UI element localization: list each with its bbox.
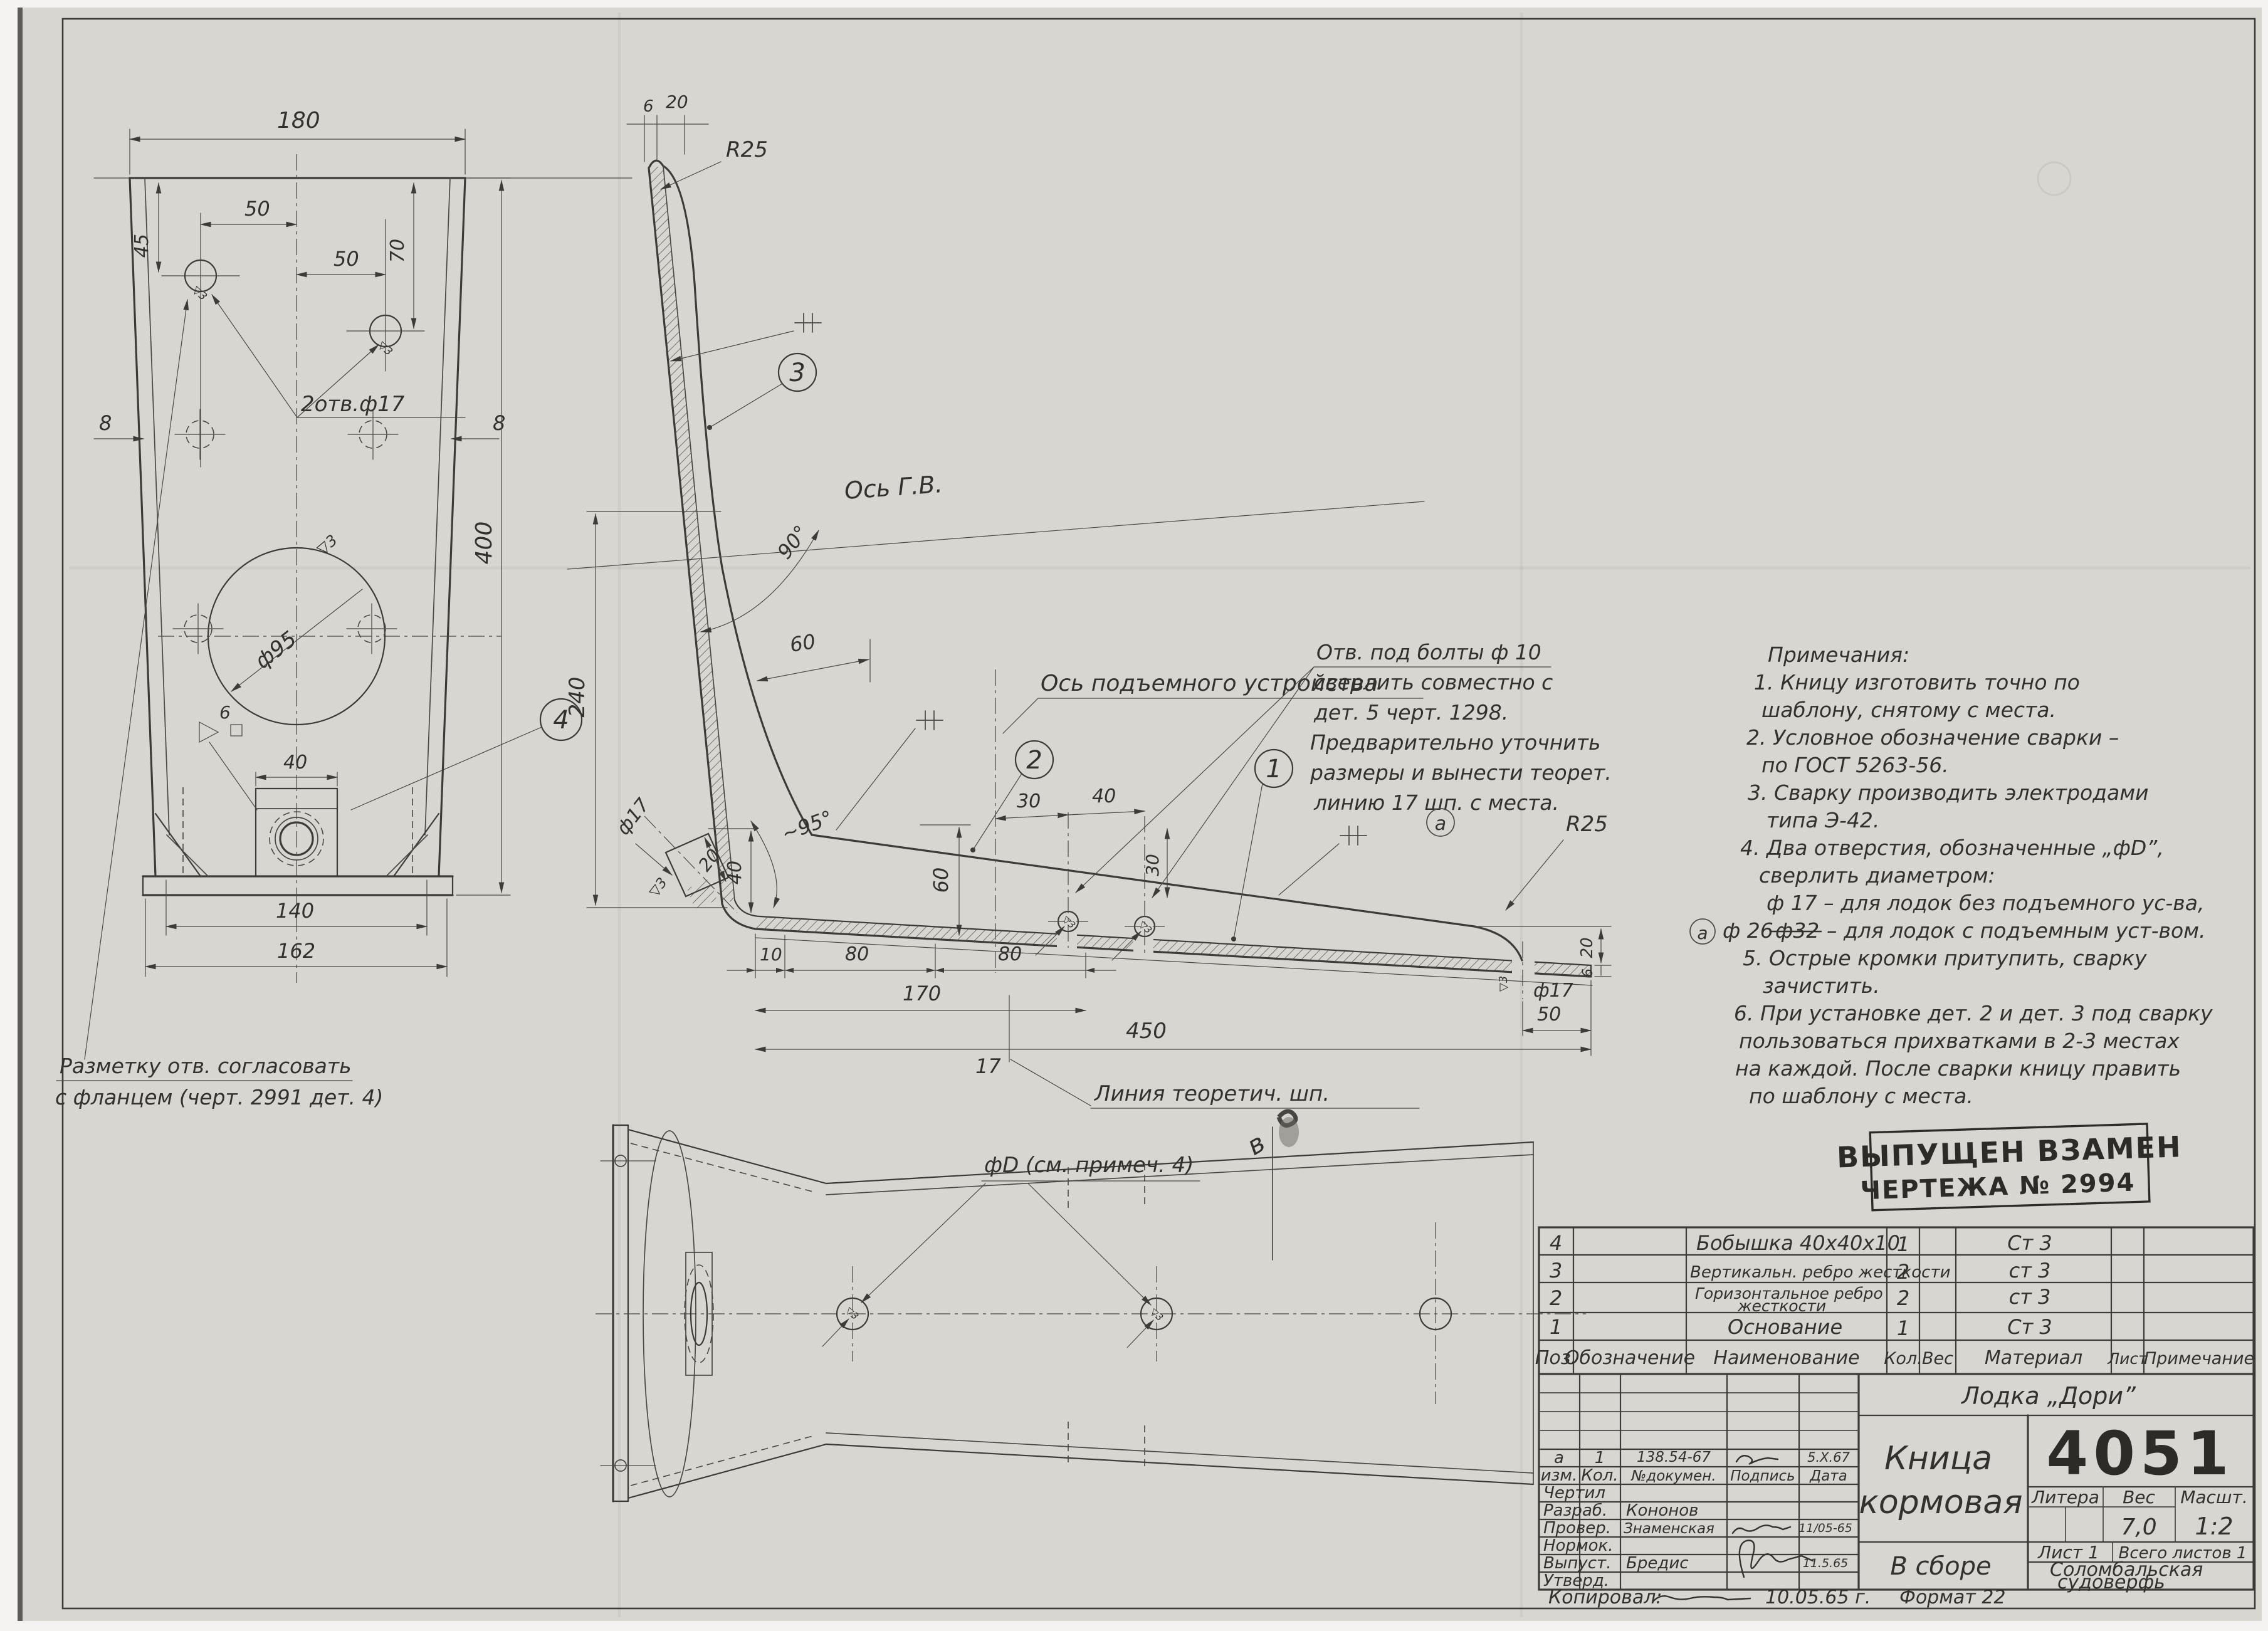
note-line-added: ф 26 <box>1723 918 1773 943</box>
row-razrab: Разраб. <box>1543 1501 1607 1520</box>
dim-40c: 40 <box>724 861 746 884</box>
dim-162: 162 <box>277 939 315 963</box>
dim-50a: 50 <box>244 197 270 221</box>
row-chertil: Чертил <box>1543 1484 1605 1503</box>
callout-3: 3 <box>789 359 805 387</box>
dim-60h: 60 <box>788 629 817 657</box>
project-name: Лодка „Дори” <box>1960 1382 2136 1410</box>
col-date: Дата <box>1809 1468 1847 1484</box>
part-mat: Ст 3 <box>2007 1231 2052 1255</box>
doc-title-2: кормовая <box>1859 1484 2022 1521</box>
part-name: жесткости <box>1737 1297 1826 1315</box>
bolt-note-2: сверлить совместно с <box>1314 670 1553 695</box>
row-normok: Нормок. <box>1543 1536 1613 1555</box>
col-izm: изм. <box>1541 1466 1578 1485</box>
prover-name: Знаменская <box>1624 1521 1714 1537</box>
part-qty: 1 <box>1897 1316 1909 1340</box>
note-line: шаблону, снятому с места. <box>1761 698 2056 722</box>
note-line: по шаблону с места. <box>1749 1084 1973 1108</box>
note-line: зачистить. <box>1763 973 1880 998</box>
dim-180: 180 <box>277 108 320 134</box>
front-note-2: с фланцем (черт. 2991 дет. 4) <box>55 1085 383 1109</box>
row-prover: Провер. <box>1543 1519 1611 1538</box>
row-vypust: Выпуст. <box>1543 1554 1611 1573</box>
dim-20r: 20 <box>1578 937 1597 958</box>
note-line: на каждой. После сварки кницу править <box>1735 1056 2181 1081</box>
dia17-right: ф17 <box>1533 980 1573 1002</box>
dim-140: 140 <box>276 899 314 923</box>
finish-mark: ▽3 <box>1497 976 1510 992</box>
masht-label: Масшт. <box>2180 1487 2248 1508</box>
plan-hole-label: фD (см. примеч. 4) <box>984 1153 1194 1178</box>
part-mat: Ст 3 <box>2007 1315 2052 1339</box>
part-name: Основание <box>1728 1315 1842 1339</box>
col-sign: Подпись <box>1730 1468 1795 1484</box>
dim-6r: 6 <box>1580 968 1596 977</box>
note-line: по ГОСТ 5263-56. <box>1761 753 1949 777</box>
r25-top: R25 <box>726 137 768 162</box>
doc-number: 4051 <box>2046 1419 2234 1489</box>
rev-izm: а <box>1554 1449 1564 1467</box>
dim-80a: 80 <box>845 943 869 965</box>
dim-20-top: 20 <box>666 92 688 112</box>
part-pos: 3 <box>1550 1259 1562 1282</box>
rev-doc: 138.54-67 <box>1637 1449 1711 1466</box>
part-pos: 4 <box>1550 1231 1562 1255</box>
col-desig: Обозначение <box>1565 1347 1695 1369</box>
bolt-note-6: линию 17 шп. с места. <box>1313 790 1559 815</box>
col-note: Примечание <box>2144 1349 2254 1368</box>
part-qty: 2 <box>1897 1286 1909 1310</box>
format-label: Формат 22 <box>1899 1586 2005 1608</box>
dim-30v: 30 <box>1142 854 1163 876</box>
front-note-1: Разметку отв. согласовать <box>60 1054 352 1078</box>
note-line: пользоваться прихватками в 2-3 местах <box>1739 1029 2180 1053</box>
part-pos: 1 <box>1550 1315 1562 1339</box>
dim-40: 40 <box>283 752 307 774</box>
col-material: Материал <box>1985 1347 2082 1369</box>
r25-right: R25 <box>1566 812 1608 837</box>
blueprint-sheet: 180 45 50 50 70 8 8 400 40 140 162 2отв.… <box>0 0 2268 1631</box>
note-line: 1. Кницу изготовить точно по <box>1754 670 2080 695</box>
bolt-note-1: Отв. под болты ф 10 <box>1316 640 1541 664</box>
prover-date: 11/05-65 <box>1798 1521 1852 1535</box>
rev-kol: 1 <box>1595 1449 1605 1467</box>
dim-50r: 50 <box>1537 1004 1561 1025</box>
note-line: сверлить диаметром: <box>1759 863 1995 888</box>
part-qty: 2 <box>1897 1260 1909 1284</box>
holes-label: 2отв.ф17 <box>301 392 405 417</box>
dim-50b: 50 <box>333 247 359 271</box>
callout-1: 1 <box>1266 755 1281 784</box>
dim-170: 170 <box>903 982 941 1005</box>
col-name: Наименование <box>1713 1347 1859 1369</box>
note-line-struck: ф32 <box>1775 918 1819 943</box>
kopir-label: Копировал: <box>1548 1586 1662 1608</box>
rev-mark-a: а <box>1697 923 1708 943</box>
dim-80b: 80 <box>998 943 1022 965</box>
col-qty: Кол. <box>1884 1349 1923 1368</box>
part-name: Вертикальн. ребро жесткости <box>1690 1263 1951 1282</box>
note-line: 3. Сварку производить электродами <box>1748 780 2149 805</box>
col-kol: Кол. <box>1581 1466 1618 1485</box>
rev-mark-a: а <box>1435 813 1446 835</box>
dim-400: 400 <box>471 522 497 565</box>
weld-size: 6 <box>219 702 231 723</box>
part-pos: 2 <box>1550 1286 1562 1310</box>
dim-8-left: 8 <box>99 411 112 435</box>
notes-title: Примечания: <box>1768 642 1909 667</box>
masht-value: 1:2 <box>2195 1513 2233 1540</box>
col-sheet: Лист <box>2107 1350 2148 1368</box>
part-mat: ст 3 <box>2009 1259 2051 1282</box>
dim-6-top: 6 <box>643 97 654 116</box>
note-line: – для лодок с подъемным уст-вом. <box>1827 918 2206 943</box>
litera-label: Литера <box>2031 1487 2099 1508</box>
part-qty: 1 <box>1897 1232 1909 1256</box>
rev-date: 5.X.67 <box>1807 1450 1850 1465</box>
vypust-name: Бредис <box>1626 1554 1689 1573</box>
doc-title-1: Кница <box>1884 1440 1992 1477</box>
dim-30a: 30 <box>1017 790 1041 812</box>
dim-17shp: 17 <box>975 1054 1001 1078</box>
note-line: 5. Острые кромки притупить, сварку <box>1743 946 2147 970</box>
dim-45: 45 <box>131 234 153 258</box>
callout-2: 2 <box>1026 746 1042 775</box>
bolt-note-4: Предварительно уточнить <box>1310 730 1600 755</box>
part-name: Бобышка 40х40х10 <box>1696 1231 1900 1255</box>
ves-value: 7,0 <box>2121 1514 2156 1540</box>
note-line: 4. Два отверстия, обозначенные „фD”, <box>1740 836 2164 860</box>
dim-240: 240 <box>565 677 590 718</box>
note-line: типа Э-42. <box>1767 808 1879 832</box>
dim-10: 10 <box>760 944 782 965</box>
razrab-name: Кононов <box>1626 1501 1699 1520</box>
bolt-note-5: размеры и вынести теорет. <box>1310 760 1612 785</box>
dim-60v: 60 <box>929 868 953 893</box>
dim-70: 70 <box>387 239 409 263</box>
dim-8-right: 8 <box>493 411 505 435</box>
part-mat: ст 3 <box>2009 1285 2051 1309</box>
dim-40b: 40 <box>1092 785 1116 807</box>
dim-450: 450 <box>1126 1019 1167 1044</box>
note-line: ф 17 – для лодок без подъемного ус-ва, <box>1767 891 2204 915</box>
theor-line-label: Линия теоретич. шп. <box>1093 1081 1330 1106</box>
assembly-label: В сборе <box>1890 1552 1991 1581</box>
note-line: 2. Условное обозначение сварки – <box>1746 725 2119 750</box>
org-line-2: судоверфь <box>2057 1571 2165 1593</box>
col-weight: Вес <box>1922 1349 1953 1368</box>
col-doc: №докумен. <box>1630 1468 1716 1484</box>
ves-label: Вес <box>2123 1487 2155 1508</box>
bolt-note-3: дет. 5 черт. 1298. <box>1313 700 1508 725</box>
kopir-date: 10.05.65 г. <box>1765 1586 1871 1608</box>
note-line: 6. При установке дет. 2 и дет. 3 под сва… <box>1734 1001 2213 1025</box>
